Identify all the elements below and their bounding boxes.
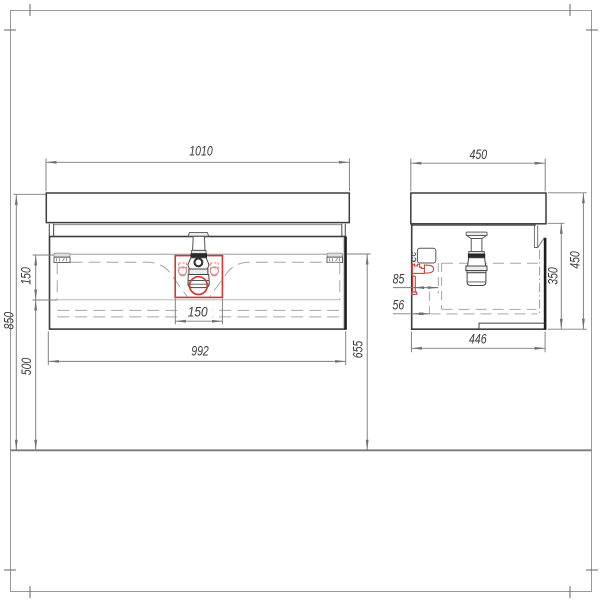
svg-text:446: 446 xyxy=(469,331,487,347)
svg-text:56: 56 xyxy=(393,297,405,313)
svg-text:350: 350 xyxy=(545,267,561,285)
svg-text:150: 150 xyxy=(18,267,34,285)
svg-text:500: 500 xyxy=(19,357,35,375)
svg-text:450: 450 xyxy=(470,147,488,163)
svg-text:85: 85 xyxy=(393,271,405,287)
svg-text:655: 655 xyxy=(350,340,366,358)
svg-text:992: 992 xyxy=(191,343,209,359)
svg-text:850: 850 xyxy=(1,312,17,330)
svg-text:1010: 1010 xyxy=(189,143,213,159)
svg-text:150: 150 xyxy=(188,303,209,319)
svg-text:450: 450 xyxy=(567,251,583,269)
